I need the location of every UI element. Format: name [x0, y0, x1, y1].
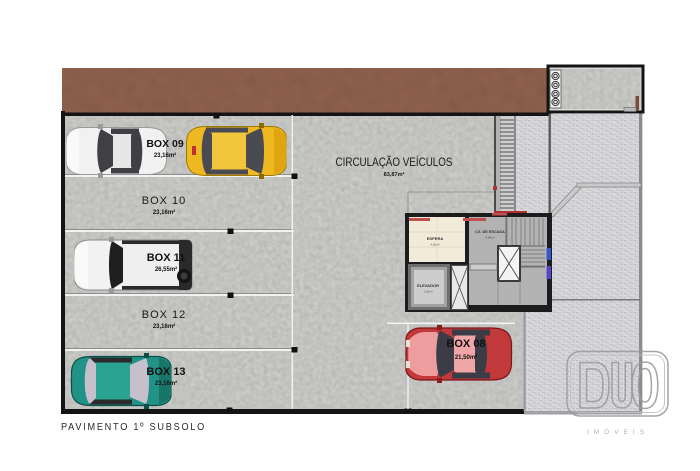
- svg-text:23,16m²: 23,16m²: [153, 323, 175, 330]
- svg-text:CX. DE ESCADA: CX. DE ESCADA: [475, 230, 505, 234]
- svg-text:BOX 09: BOX 09: [146, 138, 184, 150]
- svg-text:9,89m²: 9,89m²: [485, 236, 494, 240]
- svg-text:ELEVADOR: ELEVADOR: [417, 283, 439, 288]
- svg-text:23,16m²: 23,16m²: [154, 152, 176, 159]
- svg-text:BOX 10: BOX 10: [142, 195, 187, 207]
- svg-text:BOX 11: BOX 11: [147, 252, 186, 264]
- svg-text:4,00m²: 4,00m²: [430, 243, 439, 247]
- svg-text:BOX 08: BOX 08: [446, 338, 485, 350]
- svg-text:26,55m²: 26,55m²: [155, 266, 177, 273]
- svg-text:83,87m²: 83,87m²: [384, 171, 405, 178]
- svg-text:PAVIMENTO 1º SUBSOLO: PAVIMENTO 1º SUBSOLO: [61, 421, 206, 433]
- svg-text:1,20m²: 1,20m²: [423, 290, 432, 294]
- svg-text:BOX 12: BOX 12: [142, 309, 187, 321]
- svg-text:21,50m²: 21,50m²: [455, 354, 477, 361]
- svg-text:BOX 13: BOX 13: [146, 366, 185, 378]
- svg-text:ESPERA: ESPERA: [427, 236, 444, 241]
- svg-text:23,16m²: 23,16m²: [153, 209, 175, 216]
- svg-text:IMÓVEIS: IMÓVEIS: [587, 427, 649, 436]
- svg-text:23,16m²: 23,16m²: [155, 380, 177, 387]
- svg-text:CIRCULAÇÃO VEÍCULOS: CIRCULAÇÃO VEÍCULOS: [336, 154, 453, 169]
